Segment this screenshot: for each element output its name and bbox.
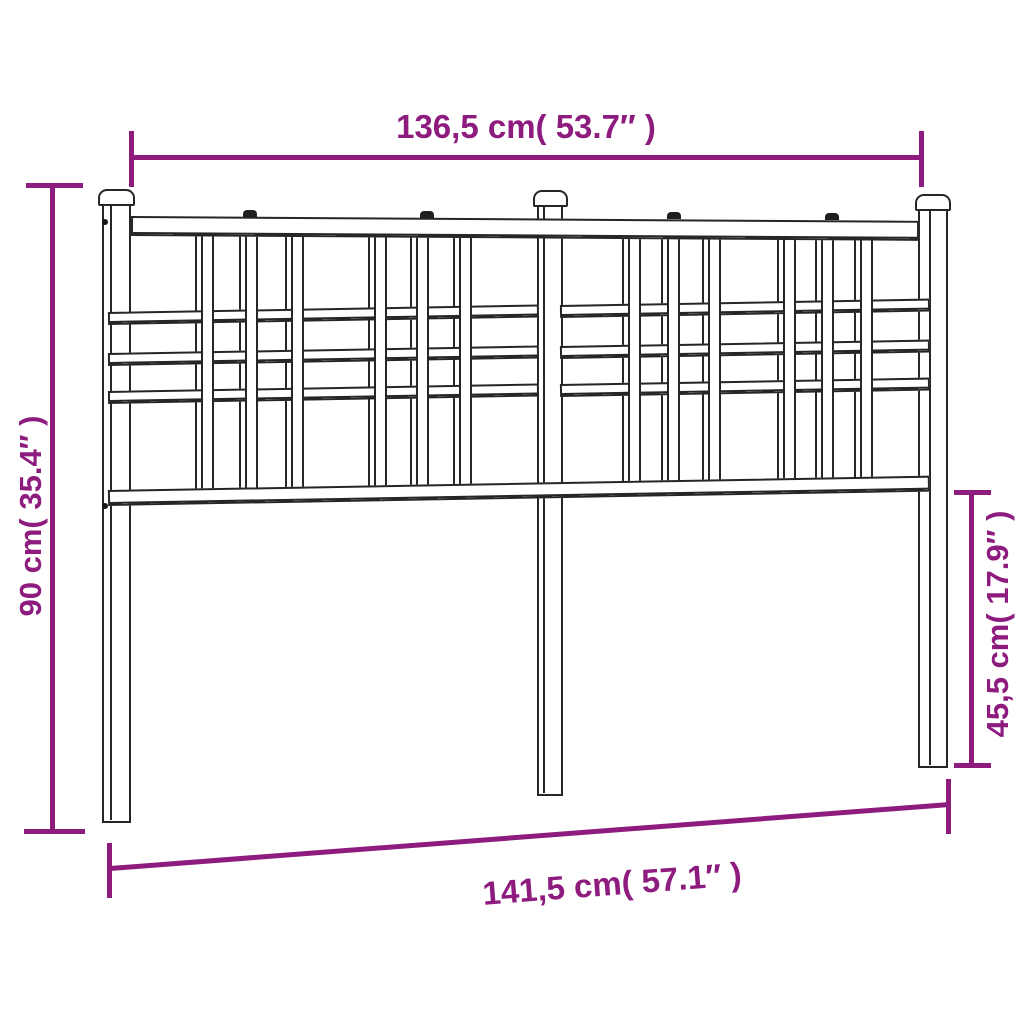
top-dimension-tick-left	[129, 131, 134, 187]
middle-rail	[108, 476, 930, 506]
slat	[201, 232, 214, 498]
slat	[667, 232, 680, 490]
mounting-tab	[825, 213, 839, 220]
mounting-tab	[420, 211, 434, 218]
cross-bar	[560, 299, 930, 318]
bottom-dimension-tick-right	[946, 779, 951, 834]
right-dimension-tick-top	[954, 490, 991, 495]
cross-bar	[560, 340, 930, 359]
slat	[459, 232, 472, 498]
left-dimension-line	[50, 185, 55, 832]
top-dimension-tick-right	[919, 131, 924, 187]
mounting-tab	[243, 210, 257, 217]
right-post-cap	[915, 194, 951, 211]
mounting-tab	[667, 212, 681, 219]
cross-bar	[108, 345, 539, 366]
cross-bar	[108, 383, 539, 404]
slat	[245, 232, 258, 498]
cross-bar	[560, 378, 930, 397]
left-dimension-tick-bottom	[24, 829, 85, 834]
center-post	[537, 205, 563, 796]
top-dimension-label: 136,5 cm( 53.7″ )	[281, 108, 771, 146]
slat	[628, 232, 641, 490]
headboard-drawing	[0, 0, 1024, 1024]
slat	[291, 232, 304, 498]
right-dimension-tick-bottom	[954, 763, 991, 768]
left-post-cap	[98, 189, 135, 206]
left-post-bolt-hole-top	[102, 219, 108, 225]
top-dimension-line	[131, 155, 922, 160]
slat	[821, 232, 834, 490]
slat	[783, 232, 796, 490]
left-post-bolt-hole-bottom	[102, 503, 108, 509]
left-dimension-tick-top	[26, 183, 83, 188]
cross-bar	[108, 304, 539, 325]
left-dimension-label: 90 cm( 35.4″ )	[13, 416, 49, 617]
slat	[374, 232, 387, 498]
right-dimension-line	[969, 492, 974, 768]
left-post-bevel-line	[110, 206, 112, 820]
left-post	[102, 204, 131, 823]
bottom-dimension-tick-left	[107, 843, 112, 898]
slat	[416, 232, 429, 498]
center-post-bevel-line	[543, 207, 545, 793]
slat	[860, 232, 873, 490]
slat	[708, 232, 721, 490]
center-post-cap	[533, 190, 568, 207]
right-dimension-label: 45,5 cm( 17.9″ )	[980, 511, 1016, 738]
dimension-diagram: 136,5 cm( 53.7″ ) 90 cm( 35.4″ ) 45,5 cm…	[0, 0, 1024, 1024]
